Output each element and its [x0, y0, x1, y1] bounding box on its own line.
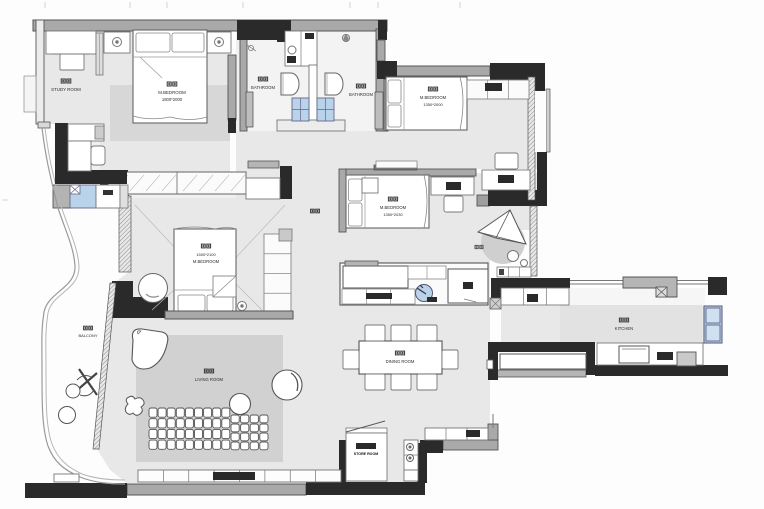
- svg-text:STUDY ROOM: STUDY ROOM: [51, 87, 81, 92]
- svg-text:1800*2000: 1800*2000: [162, 97, 183, 102]
- svg-text:M.BEDROOM: M.BEDROOM: [193, 259, 220, 264]
- svg-text:DINING ROOM: DINING ROOM: [386, 359, 415, 364]
- svg-text:LIVING ROOM: LIVING ROOM: [195, 377, 223, 382]
- svg-text:M.BEDROOM: M.BEDROOM: [158, 90, 186, 95]
- svg-text:STORE ROOM: STORE ROOM: [354, 452, 379, 456]
- svg-text:1500*2100: 1500*2100: [196, 252, 216, 257]
- svg-text:BATHROOM: BATHROOM: [349, 92, 373, 97]
- svg-text:1350*2030: 1350*2030: [383, 212, 403, 217]
- svg-text:M.BEDROOM: M.BEDROOM: [380, 205, 407, 210]
- svg-text:KITCHEN: KITCHEN: [615, 326, 633, 331]
- svg-text:BATHROOM: BATHROOM: [251, 85, 275, 90]
- svg-text:1350*2000: 1350*2000: [423, 102, 443, 107]
- svg-text:BALCONY: BALCONY: [78, 333, 97, 338]
- svg-text:M.BEDROOM: M.BEDROOM: [420, 95, 447, 100]
